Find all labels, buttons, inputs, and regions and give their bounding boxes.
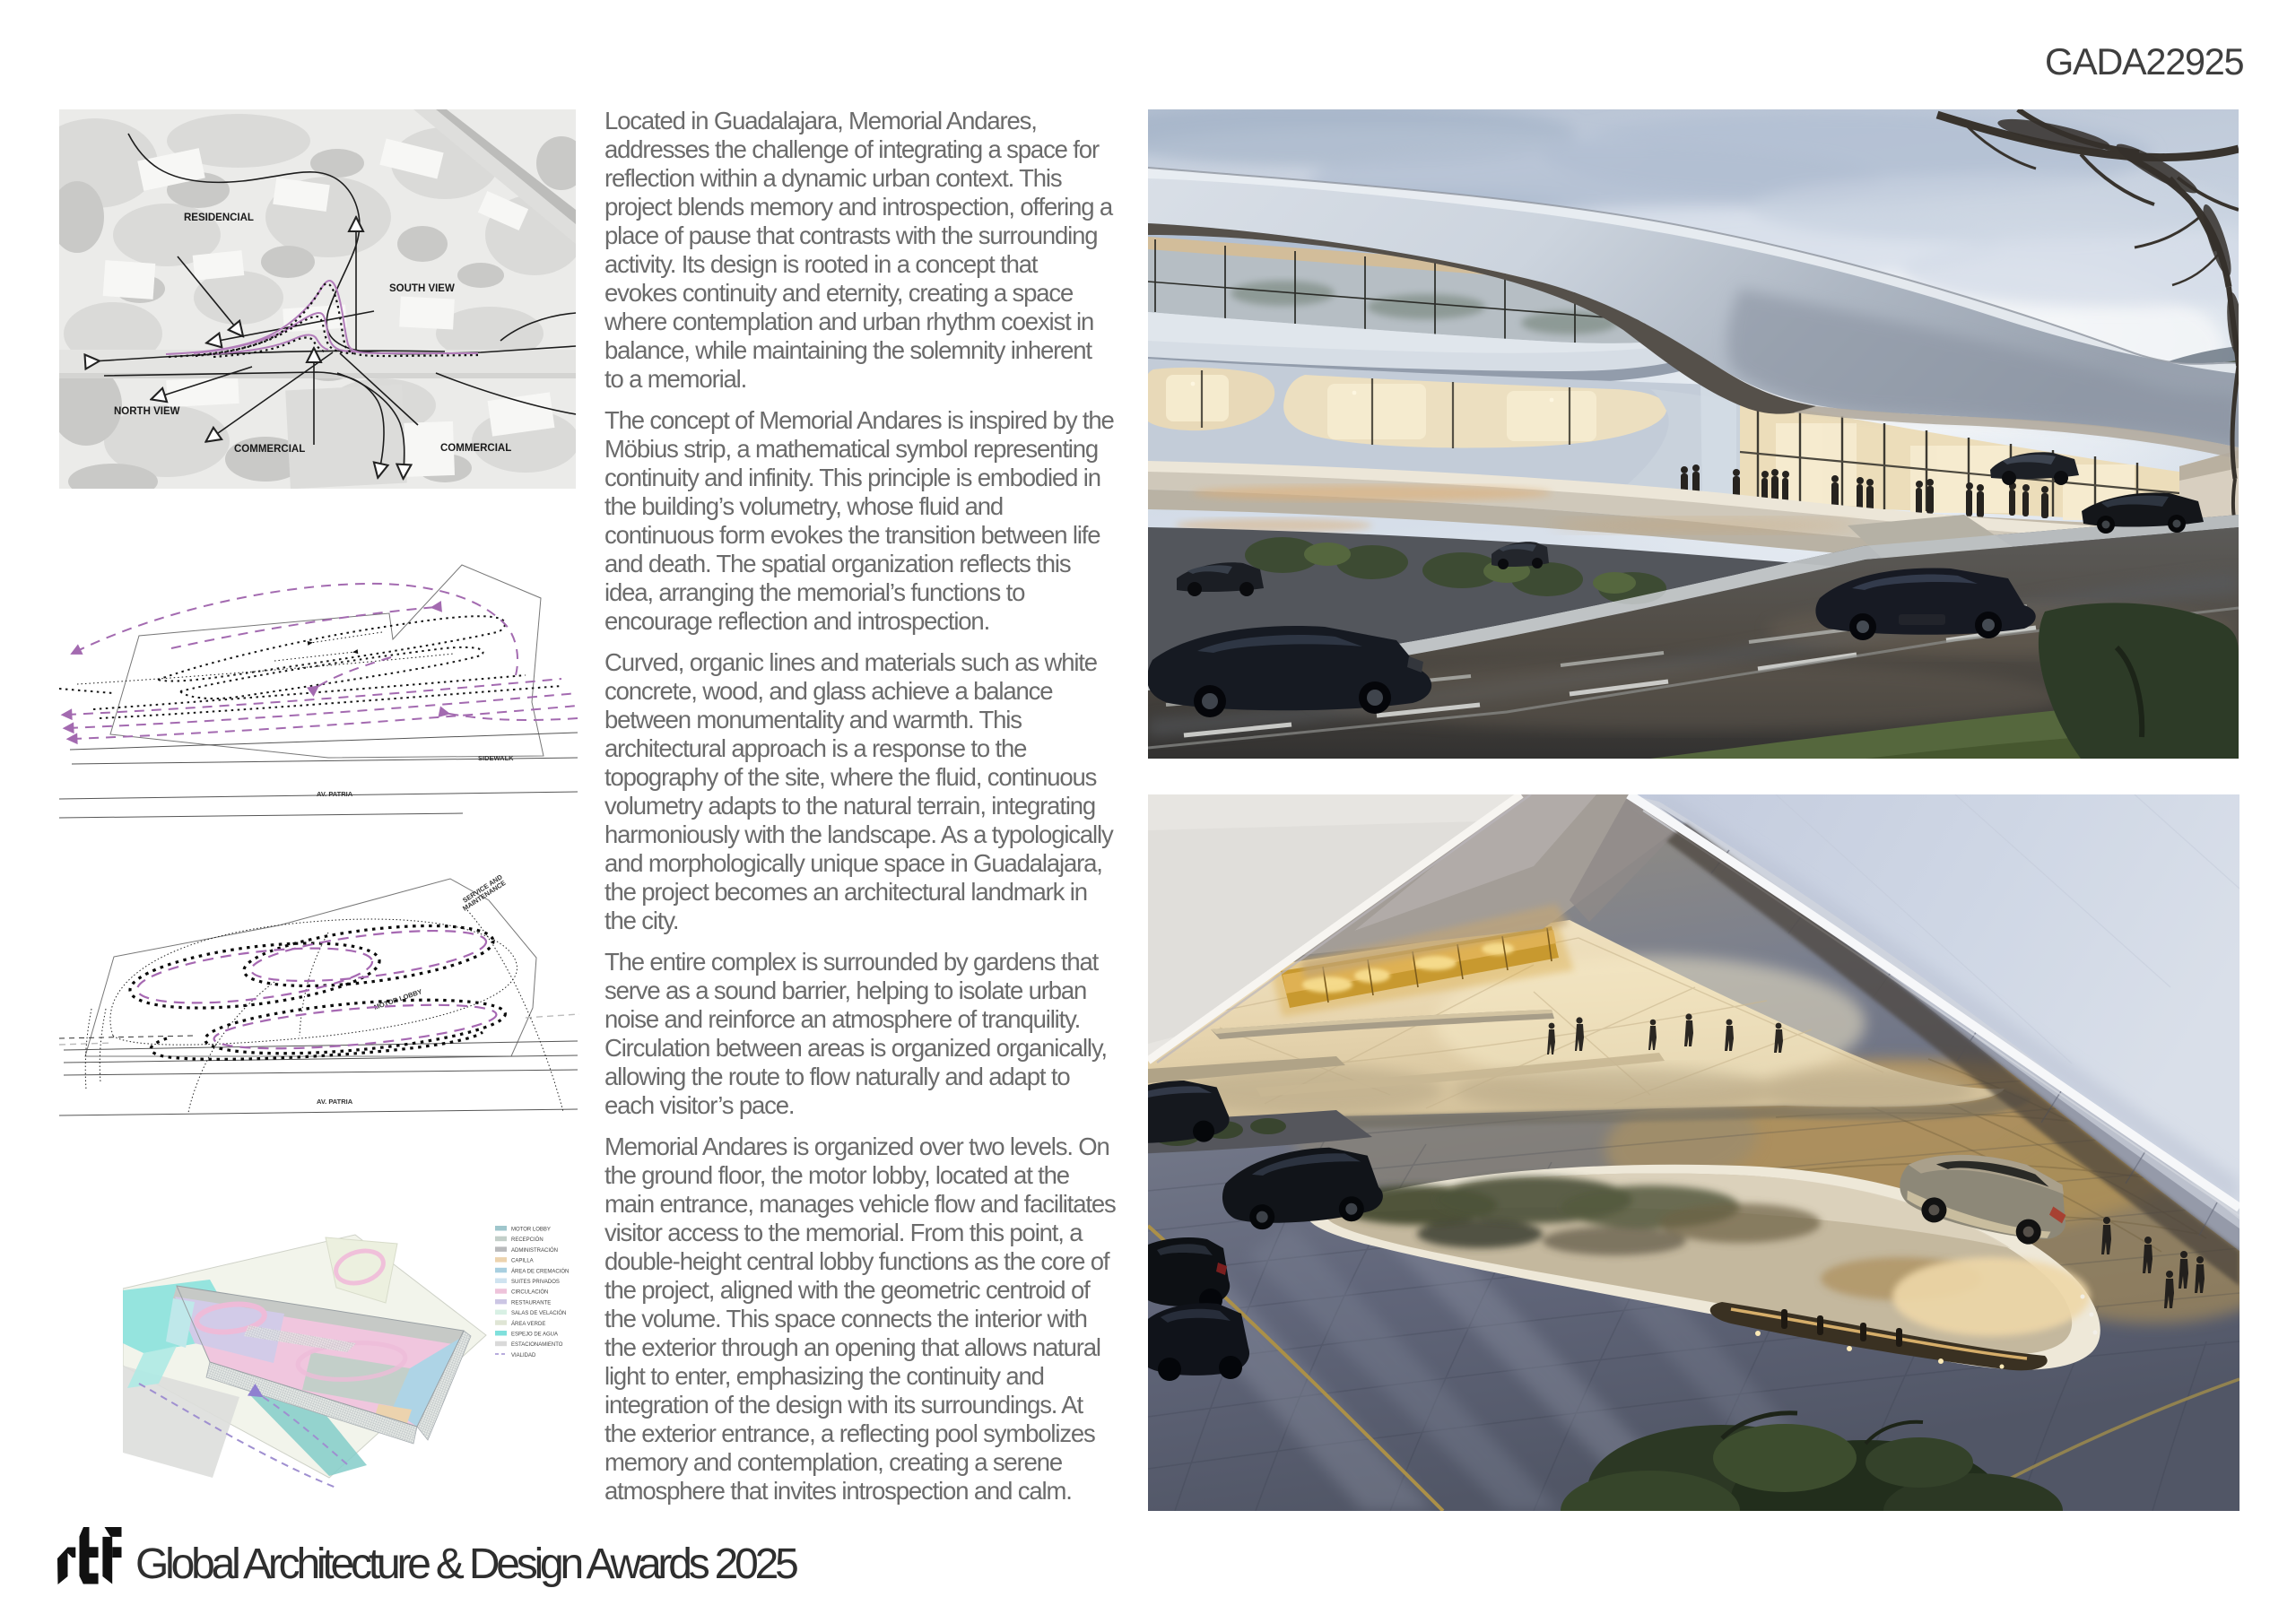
svg-text:RESTAURANTE: RESTAURANTE: [511, 1300, 551, 1306]
svg-text:MOTOR LOBBY: MOTOR LOBBY: [373, 987, 423, 1011]
svg-text:SIDEWALK: SIDEWALK: [478, 754, 514, 762]
svg-text:COMMERCIAL: COMMERCIAL: [234, 444, 305, 455]
svg-text:RESIDENCIAL: RESIDENCIAL: [184, 213, 254, 223]
svg-text:ESPEJO DE AGUA: ESPEJO DE AGUA: [511, 1332, 558, 1338]
svg-text:ÁREA DE CREMACIÓN: ÁREA DE CREMACIÓN: [511, 1268, 569, 1274]
svg-text:MOTOR LOBBY: MOTOR LOBBY: [511, 1228, 551, 1233]
svg-text:CIRCULACIÓN: CIRCULACIÓN: [511, 1289, 548, 1296]
svg-text:ESTACIONAMIENTO: ESTACIONAMIENTO: [511, 1342, 563, 1348]
svg-text:VIALIDAD: VIALIDAD: [511, 1353, 536, 1358]
svg-text:RECEPCIÓN: RECEPCIÓN: [511, 1237, 544, 1243]
svg-text:ADMINISTRACIÓN: ADMINISTRACIÓN: [511, 1247, 558, 1254]
svg-text:CAPILLA: CAPILLA: [511, 1259, 534, 1264]
svg-text:AV. PATRIA: AV. PATRIA: [317, 790, 353, 798]
svg-text:ÁREA VERDE: ÁREA VERDE: [511, 1321, 545, 1327]
svg-text:SALAS DE VELACIÓN: SALAS DE VELACIÓN: [511, 1310, 566, 1316]
svg-text:NORTH VIEW: NORTH VIEW: [114, 406, 180, 417]
svg-text:COMMERCIAL: COMMERCIAL: [440, 443, 511, 454]
svg-text:SOUTH VIEW: SOUTH VIEW: [389, 283, 455, 294]
svg-text:SUITES PRIVADOS: SUITES PRIVADOS: [511, 1280, 560, 1285]
svg-text:AV. PATRIA: AV. PATRIA: [317, 1098, 353, 1106]
